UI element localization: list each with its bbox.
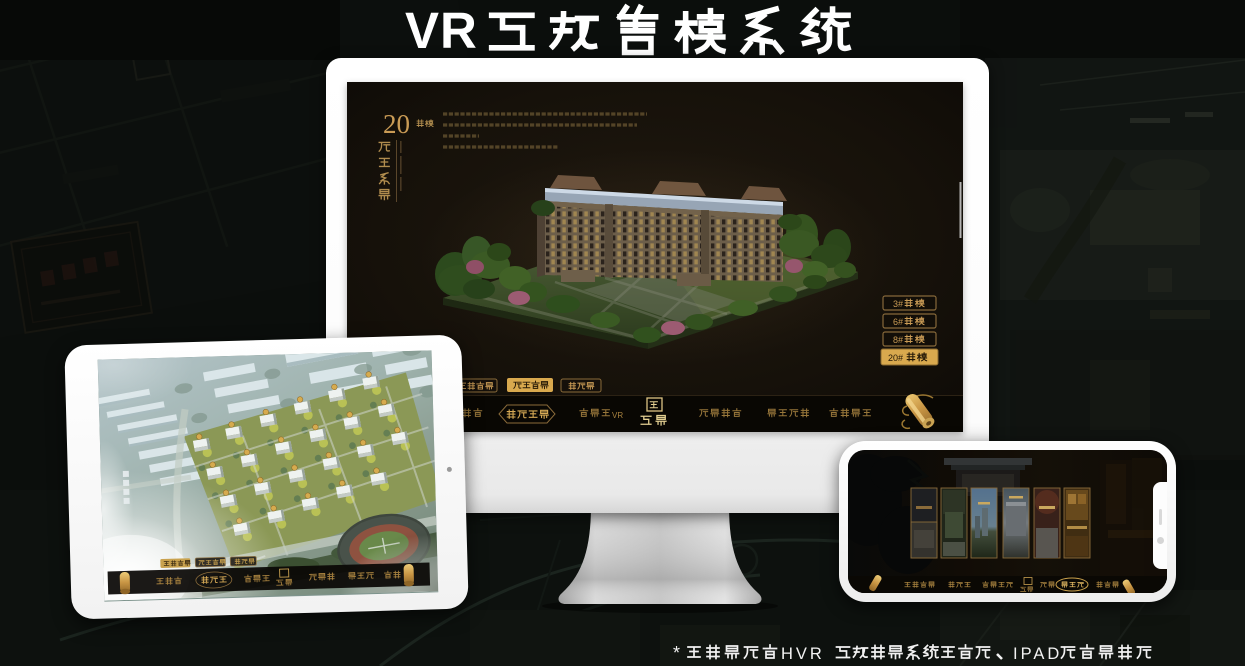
- svg-text:*: *: [673, 643, 680, 663]
- svg-text:8#: 8#: [893, 335, 903, 345]
- svg-text:3#: 3#: [893, 299, 903, 309]
- svg-text:VR: VR: [405, 2, 478, 58]
- svg-text:VR: VR: [612, 411, 623, 420]
- svg-text:20: 20: [383, 109, 410, 139]
- svg-text:HVR: HVR: [781, 645, 825, 663]
- svg-text:20#: 20#: [888, 353, 903, 363]
- svg-text:6#: 6#: [893, 317, 903, 327]
- svg-text:IPAD: IPAD: [1013, 645, 1062, 663]
